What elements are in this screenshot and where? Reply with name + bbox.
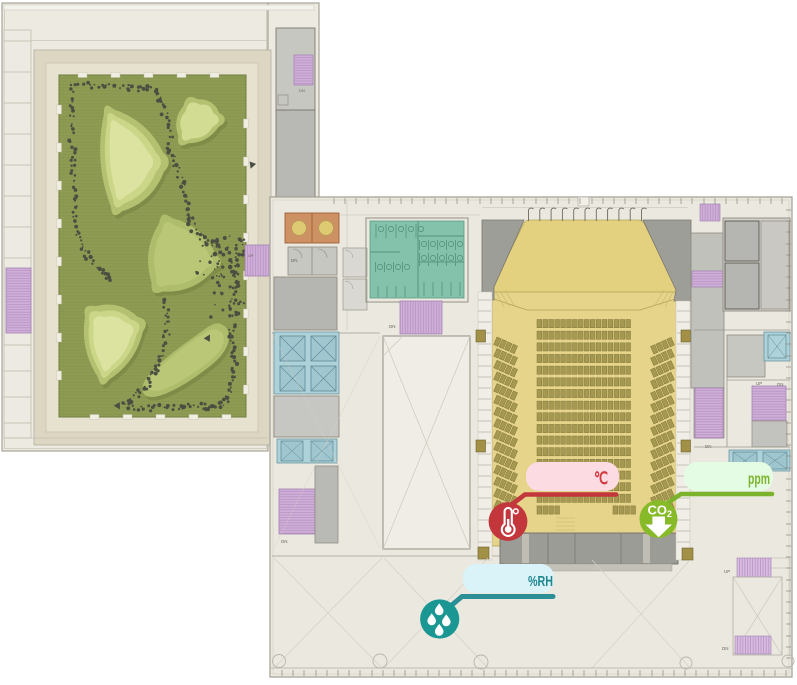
svg-text:UP: UP <box>724 569 730 574</box>
svg-text:DN: DN <box>291 258 298 263</box>
svg-text:%RH: %RH <box>528 573 553 590</box>
svg-text:UP: UP <box>248 253 254 258</box>
svg-text:DN: DN <box>777 382 784 387</box>
svg-text:DN: DN <box>705 444 712 449</box>
svg-text:℃: ℃ <box>594 469 608 488</box>
svg-text:DN: DN <box>389 324 396 329</box>
svg-text:DN: DN <box>281 539 288 544</box>
svg-text:UP: UP <box>756 381 762 386</box>
svg-text:DN: DN <box>299 88 305 93</box>
svg-text:ppm: ppm <box>748 471 770 488</box>
svg-text:DN: DN <box>722 646 729 651</box>
